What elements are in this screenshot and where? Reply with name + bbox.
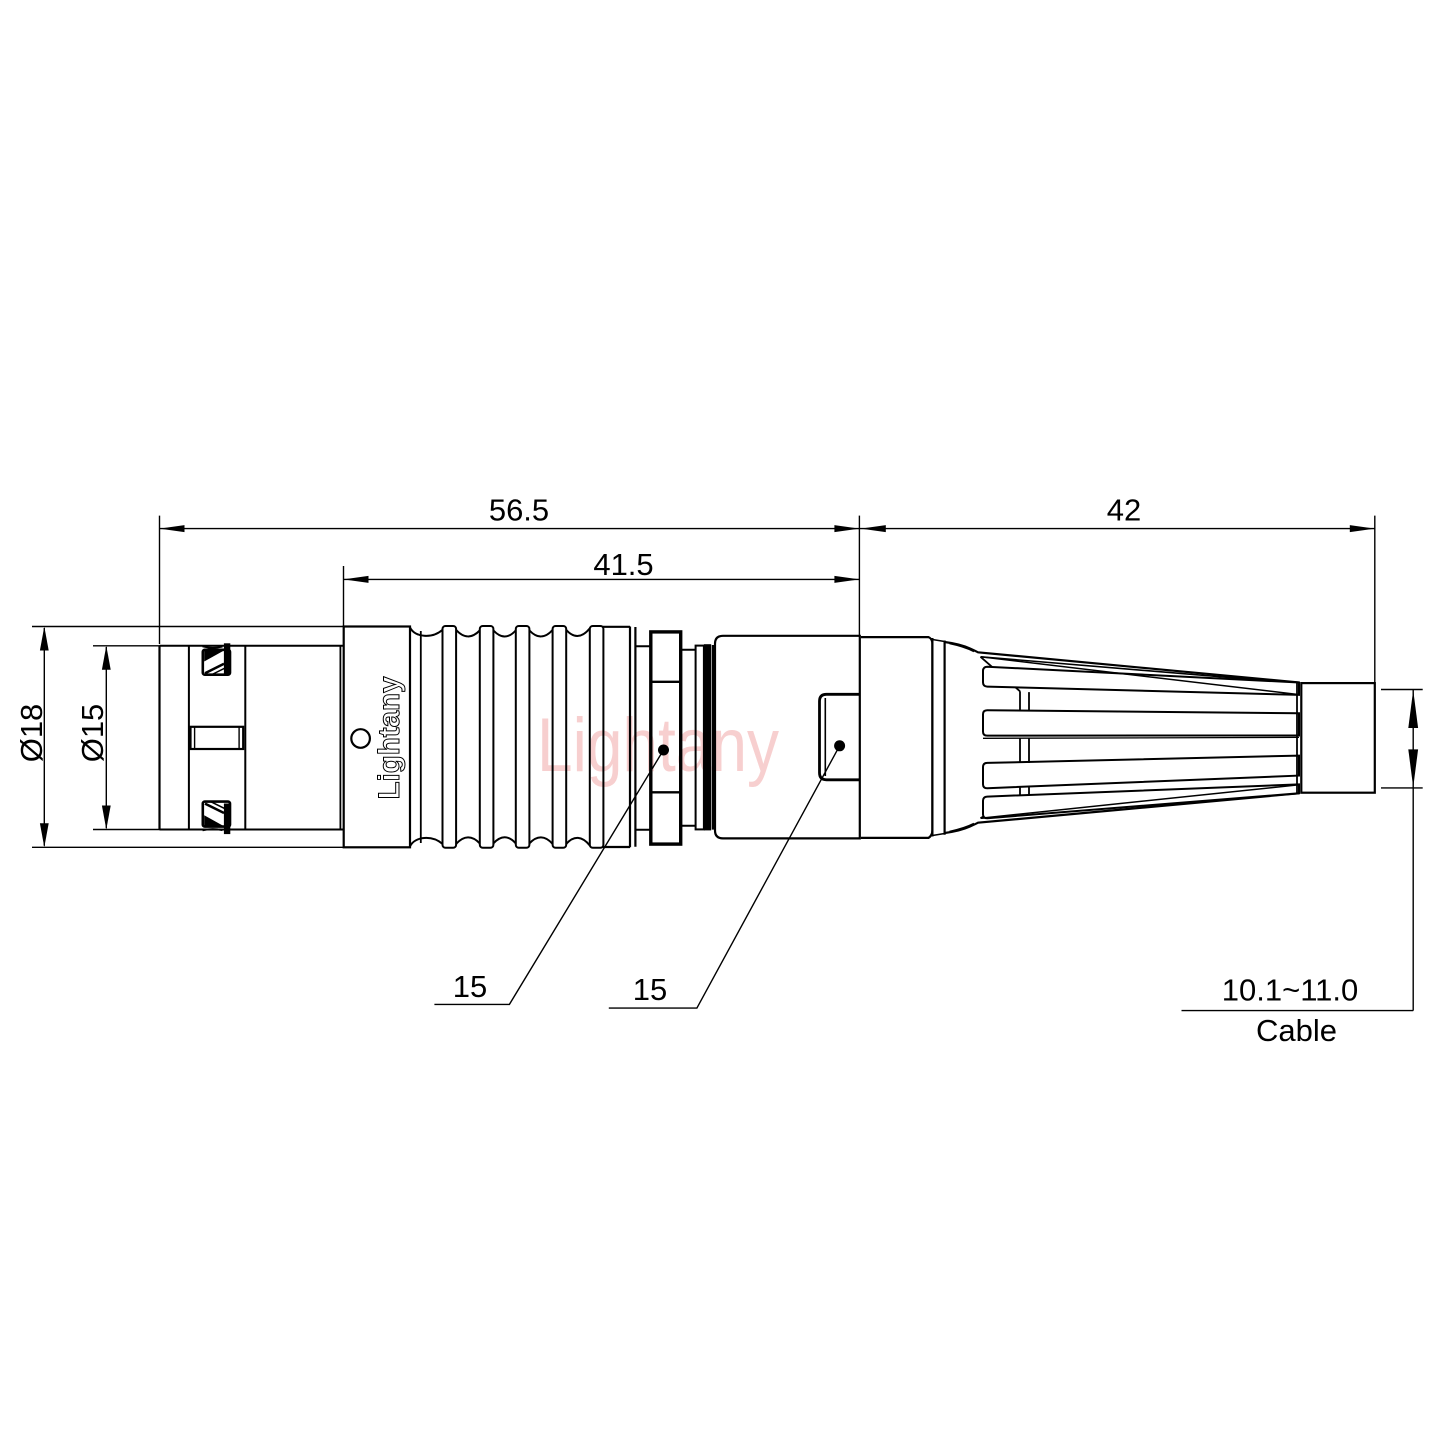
svg-text:15: 15 [633,972,667,1007]
svg-text:Ø15: Ø15 [75,704,110,763]
svg-text:56.5: 56.5 [489,493,549,528]
svg-text:10.1~11.0: 10.1~11.0 [1222,973,1358,1008]
svg-text:Lightany: Lightany [537,703,779,788]
svg-text:42: 42 [1107,493,1141,528]
svg-text:15: 15 [453,969,487,1004]
svg-text:41.5: 41.5 [593,547,653,582]
svg-text:Cable: Cable [1256,1013,1337,1048]
svg-text:Ø18: Ø18 [14,704,49,763]
svg-text:Lightany: Lightany [373,676,406,799]
